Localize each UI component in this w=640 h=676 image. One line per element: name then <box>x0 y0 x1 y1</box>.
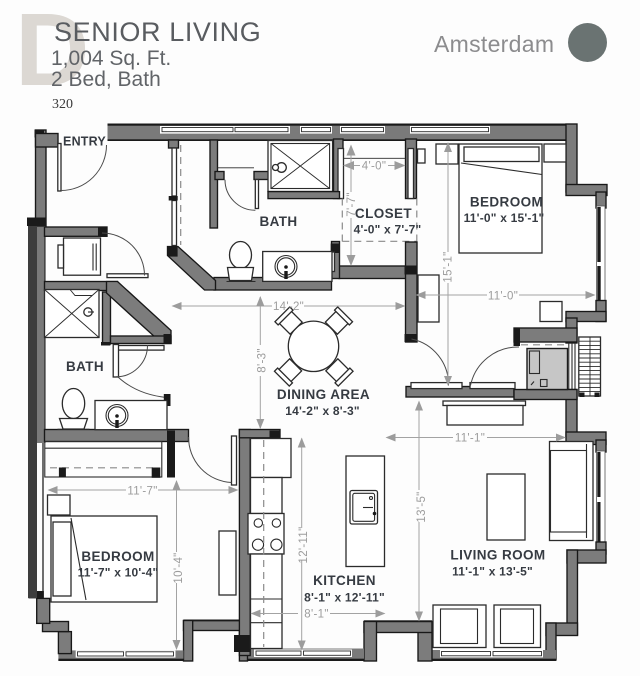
svg-text:11'-0" x 15'-1": 11'-0" x 15'-1" <box>464 211 545 225</box>
svg-text:BEDROOM: BEDROOM <box>81 549 154 564</box>
svg-text:BATH: BATH <box>259 214 297 229</box>
svg-text:14'-2" x 8'-3": 14'-2" x 8'-3" <box>285 404 360 418</box>
svg-text:BATH: BATH <box>66 359 104 374</box>
svg-text:8'-3": 8'-3" <box>257 348 269 372</box>
svg-text:CLOSET: CLOSET <box>355 206 413 221</box>
svg-text:12'-11": 12'-11" <box>298 527 310 564</box>
svg-text:11'-1" x 13'-5": 11'-1" x 13'-5" <box>452 565 533 579</box>
svg-text:11'-7" x 10'-4": 11'-7" x 10'-4" <box>78 566 159 580</box>
svg-text:14'-2": 14'-2" <box>273 301 304 313</box>
svg-text:11'-1": 11'-1" <box>455 433 485 445</box>
svg-text:4'-0": 4'-0" <box>362 161 386 173</box>
svg-text:11'-0": 11'-0" <box>488 291 518 303</box>
svg-text:8'-1" x 12'-11": 8'-1" x 12'-11" <box>304 591 385 605</box>
svg-text:LIVING ROOM: LIVING ROOM <box>450 548 545 563</box>
svg-text:10'-4": 10'-4" <box>173 552 185 583</box>
svg-text:11'-7": 11'-7" <box>127 486 157 498</box>
svg-text:KITCHEN: KITCHEN <box>313 573 376 588</box>
svg-text:13'-5": 13'-5" <box>416 491 428 522</box>
svg-text:BEDROOM: BEDROOM <box>470 195 543 210</box>
svg-text:DINING AREA: DINING AREA <box>277 387 370 402</box>
svg-text:ENTRY: ENTRY <box>63 135 106 149</box>
svg-text:4'-0" x 7'-7": 4'-0" x 7'-7" <box>354 223 422 237</box>
svg-text:8'-1": 8'-1" <box>304 609 328 621</box>
svg-text:15'-1": 15'-1" <box>443 251 455 282</box>
